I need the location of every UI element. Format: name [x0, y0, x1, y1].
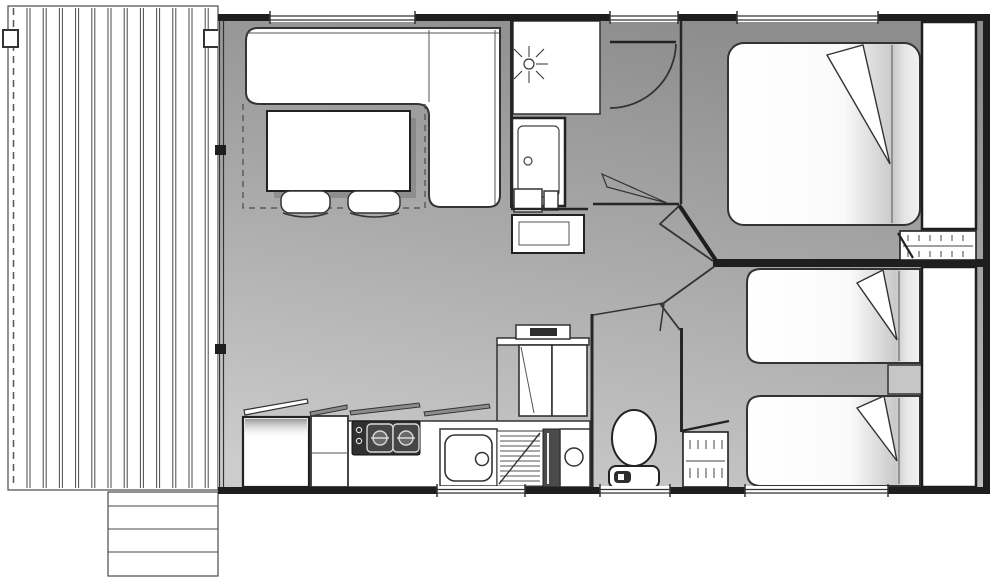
nightstand — [888, 365, 923, 394]
wall-bottom-1 — [218, 487, 437, 494]
wall-bottom-4 — [888, 487, 990, 494]
window-bottom-wc-bg — [600, 486, 670, 495]
terrace-deck — [8, 6, 218, 490]
floor-plan — [0, 0, 1000, 578]
terrace-post-right — [204, 30, 219, 47]
double-bed — [728, 43, 920, 225]
microwave-window — [530, 328, 557, 336]
tall-cabinet-left — [519, 345, 552, 416]
window-top-bathroom-bg — [610, 13, 678, 22]
wardrobe-bedroom2 — [922, 267, 976, 487]
toilet-bowl — [612, 410, 656, 466]
wall-top-3 — [678, 14, 737, 21]
sink-drain — [476, 453, 489, 466]
patio-glazing-mullion-1 — [215, 145, 226, 155]
stool-2 — [348, 191, 400, 213]
twin-bed-2 — [747, 396, 920, 486]
window-bottom-bedroom2-bg — [745, 486, 888, 495]
twin-bed-1 — [747, 269, 920, 363]
cabinet-knob — [565, 448, 583, 466]
wardrobe-bedroom1 — [922, 22, 976, 229]
tall-cabinet-right — [552, 345, 587, 416]
bath-cabinet-b — [544, 191, 558, 210]
window-bottom-kitchen-bg — [437, 486, 525, 495]
storage-unit-inner — [519, 222, 569, 245]
counter-dark-divider — [543, 429, 560, 487]
wall-bottom-3 — [670, 487, 745, 494]
wall-right — [983, 14, 990, 494]
window-top-bedroom1-bg — [737, 13, 878, 22]
window-top-living-bg — [270, 13, 415, 22]
washbasin-drain — [524, 157, 532, 165]
wall-top-2 — [415, 14, 610, 21]
fridge-top-shade — [245, 419, 307, 439]
wall-top-1 — [218, 14, 270, 21]
kitchen-cabinet-small — [311, 416, 348, 487]
terrace-post-left — [3, 30, 18, 47]
wall-bottom-2 — [525, 487, 600, 494]
toilet-flush-button-inner — [618, 474, 624, 480]
terrace-steps — [108, 492, 218, 576]
shower-drain — [524, 59, 534, 69]
wall-top-4 — [878, 14, 990, 21]
patio-glazing-mullion-2 — [215, 344, 226, 354]
floor-plan-svg — [0, 0, 1000, 578]
stool-1 — [281, 191, 330, 213]
dining-table — [267, 111, 410, 191]
